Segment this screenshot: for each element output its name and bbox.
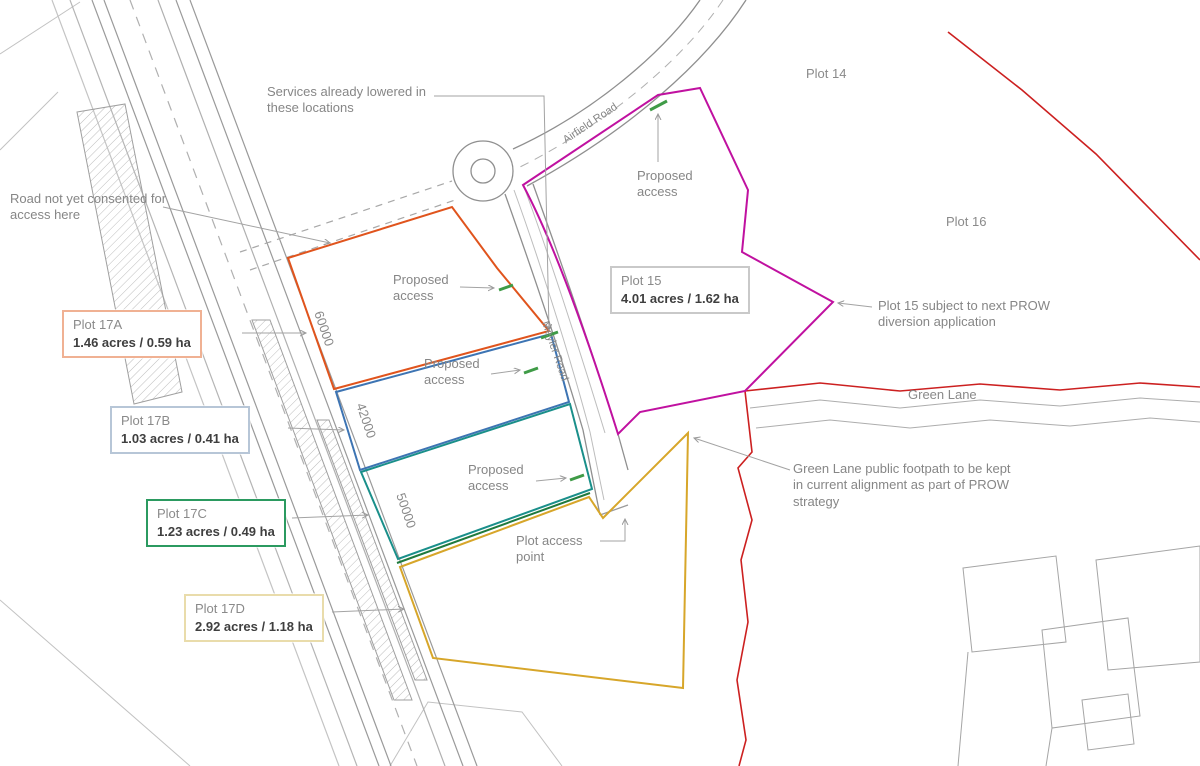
- plot-14-label: Plot 14: [806, 66, 846, 81]
- plot-17b-box: Plot 17B 1.03 acres / 0.41 ha: [110, 406, 250, 454]
- plot-15-area: 4.01 acres / 1.62 ha: [621, 290, 739, 308]
- plot-17d-box: Plot 17D 2.92 acres / 1.18 ha: [184, 594, 324, 642]
- dimension-50000: 50000: [393, 491, 419, 530]
- dimension-60000: 60000: [311, 309, 337, 348]
- plot-17b-area: 1.03 acres / 0.41 ha: [121, 430, 239, 448]
- note-proposed-access-1: Proposed access: [393, 272, 463, 305]
- plot-17a-area: 1.46 acres / 0.59 ha: [73, 334, 191, 352]
- note-plot-access-point: Plot access point: [516, 533, 598, 566]
- note-plot15-prow: Plot 15 subject to next PROW diversion a…: [878, 298, 1090, 331]
- plot-17a-name: Plot 17A: [73, 316, 191, 334]
- note-services-lowered: Services already lowered in these locati…: [267, 84, 445, 117]
- road-name-labels: Airfield Road Meyler Road Green Lane: [539, 101, 977, 402]
- plot-17b-name: Plot 17B: [121, 412, 239, 430]
- site-plan-canvas: 60000 42000 50000 Airfield Road Meyler R…: [0, 0, 1200, 766]
- airfield-road: [513, 0, 746, 186]
- plot-17c-area: 1.23 acres / 0.49 ha: [157, 523, 275, 541]
- note-green-lane-footpath: Green Lane public footpath to be kept in…: [793, 461, 1019, 510]
- roundabout: [453, 141, 513, 201]
- plot-16-label: Plot 16: [946, 214, 986, 229]
- plot-17d-name: Plot 17D: [195, 600, 313, 618]
- note-proposed-access-3: Proposed access: [468, 462, 538, 495]
- plot-17a-box: Plot 17A 1.46 acres / 0.59 ha: [62, 310, 202, 358]
- plot-15-box: Plot 15 4.01 acres / 1.62 ha: [610, 266, 750, 314]
- meyler-road-label: Meyler Road: [539, 320, 571, 383]
- plot-17c-name: Plot 17C: [157, 505, 275, 523]
- site-plan-drawing: 60000 42000 50000 Airfield Road Meyler R…: [0, 0, 1200, 766]
- note-proposed-access-4: Proposed access: [637, 168, 707, 201]
- plot-17b-boundary: [336, 334, 569, 470]
- green-lane-label: Green Lane: [908, 387, 977, 402]
- plot-17d-area: 2.92 acres / 1.18 ha: [195, 618, 313, 636]
- note-road-not-consented: Road not yet consented for access here: [10, 191, 182, 224]
- green-lane-path: [750, 398, 1200, 428]
- plot-15-name: Plot 15: [621, 272, 739, 290]
- plot-17c-box: Plot 17C 1.23 acres / 0.49 ha: [146, 499, 286, 547]
- note-proposed-access-2: Proposed access: [424, 356, 494, 389]
- plot-name-labels: Plot 14 Plot 16: [806, 66, 986, 229]
- buildings-outline: [958, 546, 1200, 766]
- dimension-42000: 42000: [353, 401, 379, 440]
